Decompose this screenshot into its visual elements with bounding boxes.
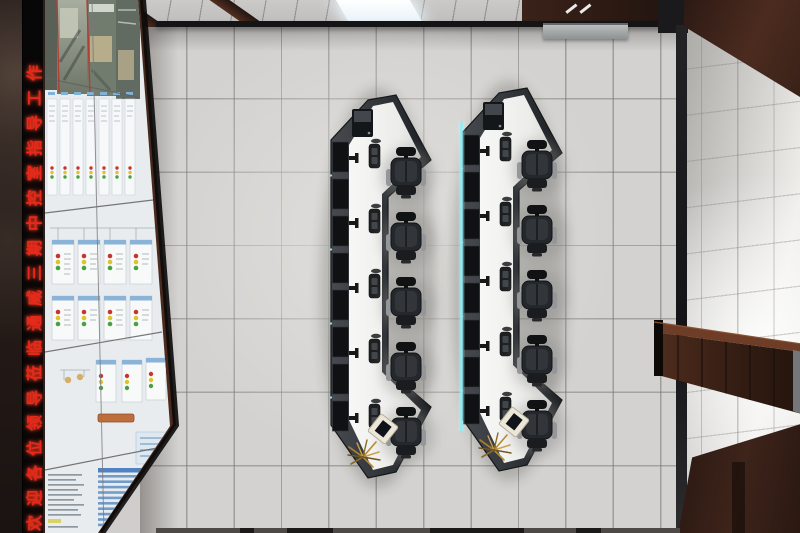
control-room-render: 欢迎各位领导莅临通威三期中控室指导工作 — [0, 0, 800, 533]
console-right — [457, 83, 597, 475]
wood-sideboard-cabinet — [654, 314, 800, 416]
wall-cabinet-box — [543, 23, 628, 39]
bottom-wall-edge — [156, 528, 680, 533]
bottom-object — [287, 528, 333, 533]
bottom-object — [240, 528, 254, 533]
bottom-object — [430, 528, 524, 533]
corner-column — [676, 25, 687, 533]
bottom-object — [576, 528, 601, 533]
ceiling-light-panel — [336, 0, 422, 21]
video-wall — [40, 0, 200, 533]
console-left — [326, 90, 466, 482]
left-wall-edge — [0, 0, 22, 533]
light-reflection — [565, 4, 577, 14]
led-banner-text: 欢迎各位领导莅临通威三期中控室指导工作 — [26, 2, 45, 531]
wood-panel-seam — [732, 462, 745, 533]
led-banner-strip: 欢迎各位领导莅临通威三期中控室指导工作 — [22, 0, 45, 533]
light-reflection — [579, 4, 591, 14]
cabinet-end-panel — [793, 350, 800, 414]
cabinet-end-bracket — [654, 320, 663, 376]
